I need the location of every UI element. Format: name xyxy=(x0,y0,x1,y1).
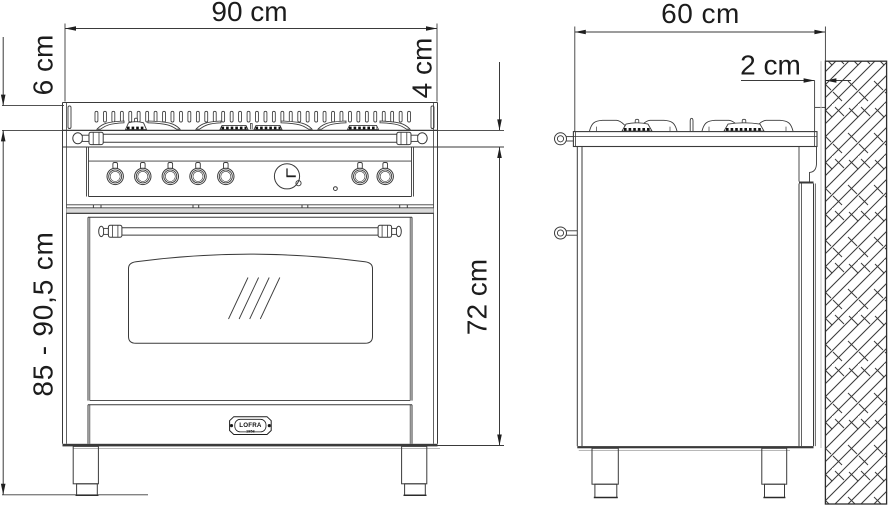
svg-text:90 cm: 90 cm xyxy=(211,0,287,27)
svg-text:1956: 1956 xyxy=(246,428,256,433)
svg-text:85 - 90,5 cm: 85 - 90,5 cm xyxy=(28,231,59,396)
svg-text:6 cm: 6 cm xyxy=(28,35,59,96)
svg-text:60 cm: 60 cm xyxy=(661,0,740,29)
svg-text:4 cm: 4 cm xyxy=(407,38,438,99)
svg-text:2 cm: 2 cm xyxy=(740,50,801,81)
svg-text:72 cm: 72 cm xyxy=(462,259,493,335)
